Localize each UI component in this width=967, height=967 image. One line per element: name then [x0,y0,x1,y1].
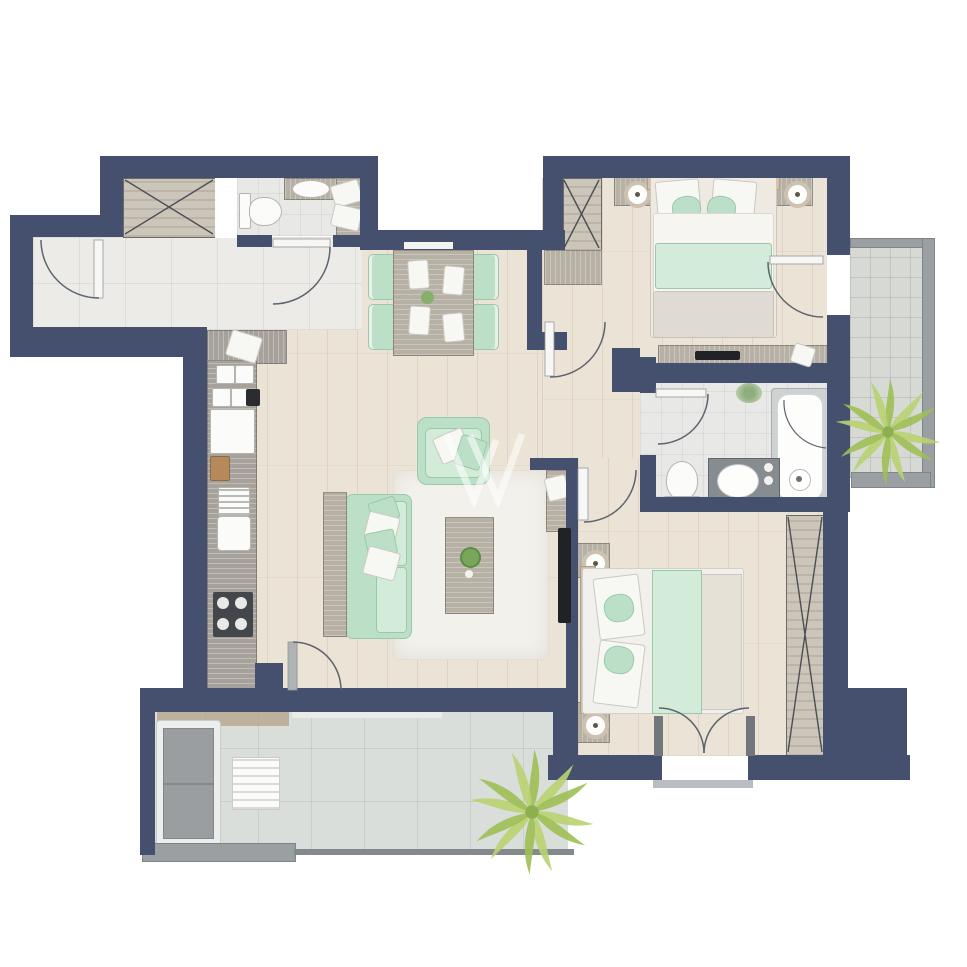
burner [235,597,247,609]
placemat [407,259,430,289]
wall-segment [10,327,207,357]
toiletry [764,476,773,485]
bed2-right-blanket [700,574,742,710]
bed1-blanket-gray [653,291,774,338]
sofa-back-console [323,492,347,637]
wall-segment [748,755,910,780]
table-lamp [784,181,811,208]
wall-segment [640,497,850,512]
wall-segment [100,156,378,178]
coffee-table-deco [465,570,473,578]
tv-bedroom1 [695,351,740,360]
wall-segment [140,688,155,855]
wall-segment [530,458,578,470]
burner [235,618,247,630]
vanity-sink [717,464,759,498]
wall-segment [543,156,563,250]
entry-closet-floor [123,178,217,238]
wall-segment [656,363,827,383]
outdoor-sofa-cushion [163,784,214,839]
outdoor-table [232,757,280,810]
toilet-bowl [249,197,282,226]
kitchen-hob-black [246,389,260,406]
french-door-post [654,716,663,756]
balcony-rail-top [850,238,930,248]
kitchen-appliance [212,388,231,407]
wall-segment [237,235,272,247]
wall-segment [640,357,656,393]
wall-segment [333,235,363,247]
floor-plan: WELHOME [0,0,967,967]
wardrobe-bedroom2 [786,515,826,757]
wardrobe-bedroom1 [563,178,602,252]
table-lamp [582,712,609,739]
bath2-plant [736,383,762,403]
burner [217,597,229,609]
bed1-blanket-green [655,243,772,289]
door-threshold [653,780,753,788]
toiletry [764,463,773,472]
outdoor-sofa-cushion [163,728,214,784]
bed2-blanket-green [652,570,702,714]
balcony-rail-right [922,238,935,488]
placemat [442,265,465,296]
wall-segment [548,755,662,780]
bedroom1-shelf [544,250,602,285]
wall-segment [827,315,850,363]
terrace-rail-line [294,849,574,855]
coffee-table-plant [460,547,481,568]
toilet2-bowl [666,461,698,500]
wall-segment [827,363,850,512]
bathtub-drain [796,476,802,482]
balcony-rail-bottom [851,472,931,488]
wall-segment [527,240,542,334]
dish-rack [218,487,250,516]
tv-living [558,528,571,623]
wall-notch [215,178,237,238]
floor-entry-hall-tile [33,237,362,330]
wooden-board [210,456,230,481]
fridge [210,409,255,454]
wall-segment [183,345,207,690]
kitchen-sink [217,516,251,551]
wall-segment [255,663,283,690]
terrace-parapet [142,843,296,862]
wall-segment [155,688,565,712]
window-sill [404,242,453,249]
kitchen-appliance [235,365,254,384]
stove [213,592,253,637]
placemat [408,305,431,335]
table-plant [421,291,434,304]
kitchen-appliance [216,365,235,384]
burner [217,618,229,630]
floor-balcony-tile [850,243,925,478]
wall-segment [543,156,850,178]
wall-segment [827,156,850,255]
placemat [442,312,465,343]
wall-segment [527,332,567,350]
wall-segment [612,348,640,392]
bath1-sink-bowl [292,180,330,198]
french-door-post [746,716,755,756]
terrace-glass-line [292,712,442,718]
watermark-logo-w [440,428,530,508]
